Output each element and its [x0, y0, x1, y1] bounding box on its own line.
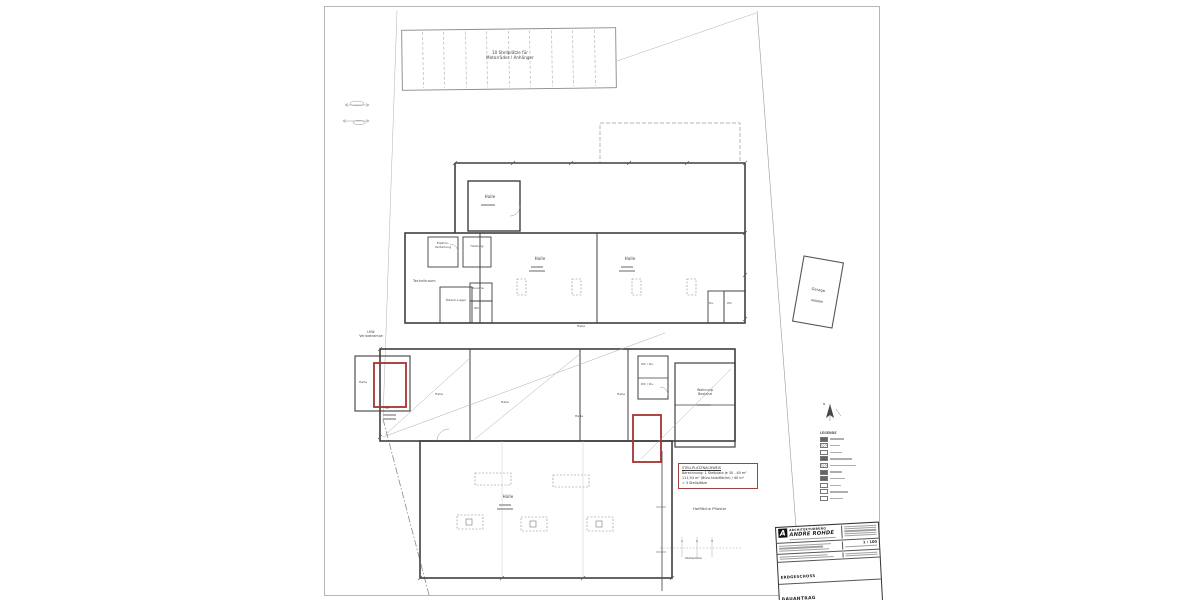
legend-swatch	[820, 456, 828, 461]
firm-contact-block	[841, 524, 877, 539]
illegible-text	[830, 478, 845, 479]
legend-swatch	[820, 489, 828, 494]
stall-number-3: 3	[711, 540, 713, 544]
illegible-text	[830, 438, 844, 439]
document-type: BAUANTRAG	[782, 596, 816, 600]
plan-linework	[325, 7, 879, 595]
room-label-wcdu-1: WC / Du.	[641, 363, 654, 366]
drawing-sheet: 10 Stellplätze für Motorräder / Anhänger…	[324, 6, 880, 596]
illegible-text	[830, 485, 841, 486]
label-stellplaetze: Stellplätze	[685, 557, 702, 561]
legend-swatch	[820, 450, 828, 455]
title-block: A ARCHITEKTURBÜRO ANDRE ROHDE 1 : 10	[775, 522, 883, 600]
illegible-text	[830, 491, 848, 492]
illegible-text	[830, 465, 856, 466]
room-label-wcdu-2: WC / Du.	[641, 383, 654, 386]
legend-title: LEGENDE	[820, 431, 878, 435]
room-label-halle-bottom: Halle	[493, 495, 523, 500]
legend-swatch	[820, 483, 828, 488]
illegible-text	[830, 458, 852, 459]
room-label-oeltank: Öltank-Lager	[439, 299, 473, 303]
legend-item	[820, 483, 878, 488]
illegible-area-text	[621, 266, 633, 268]
legend-item	[820, 463, 878, 468]
legend-item	[820, 496, 878, 501]
illegible-area-text	[531, 266, 543, 268]
room-label-wc2: WC	[727, 302, 732, 305]
room-label-halle-corridor: Halle	[577, 325, 585, 329]
illegible-area-text	[499, 504, 511, 506]
illegible-text	[846, 554, 878, 557]
floor-name: ERDGESCHOSS	[781, 573, 816, 580]
legend-swatch	[820, 443, 828, 448]
room-label-halle-a: Halle	[525, 257, 555, 262]
room-label-halle-m1: Halle	[435, 393, 443, 397]
legend-swatch	[820, 463, 828, 468]
legend-swatch	[820, 476, 828, 481]
illegible-area-text	[497, 508, 513, 510]
room-label-technikraum: Technikraum	[413, 279, 436, 283]
label-tor: Tor	[385, 407, 389, 410]
room-label-halle-b: Halle	[615, 257, 645, 262]
firm-logo-icon: A	[778, 528, 787, 537]
room-label-halle-m3: Halle	[575, 415, 583, 419]
illegible-text	[830, 445, 840, 446]
room-label-halle-left: Halle	[359, 381, 367, 385]
room-label-heizung: Heizung	[464, 245, 490, 249]
stall-number-2: 2	[696, 540, 698, 544]
stall-number-1: 1	[681, 540, 683, 544]
illegible-text	[845, 533, 877, 536]
room-label-halle-m4: Halle	[617, 393, 625, 397]
legend-item	[820, 437, 878, 442]
illegible-text	[830, 452, 842, 453]
room-label-wc: WC	[474, 307, 479, 311]
label-hofflaeche: Hoffläche Pflaster	[693, 507, 727, 511]
north-label: N	[823, 403, 825, 407]
illegible-text	[383, 418, 396, 420]
legend-item	[820, 489, 878, 494]
legend-swatch	[820, 496, 828, 501]
room-label-wohnung: Wohnung Bestand	[685, 389, 725, 397]
room-label-du: Du.	[709, 302, 714, 305]
legend-swatch	[820, 470, 828, 475]
label-lkw-rampe: LKW Verladerampe	[351, 331, 391, 339]
legend-item	[820, 470, 878, 475]
legend-item	[820, 476, 878, 481]
room-label-halle-top: Halle	[475, 195, 505, 200]
illegible-area-text	[529, 270, 545, 272]
floor-plan-canvas: 10 Stellplätze für Motorräder / Anhänger…	[0, 0, 1200, 600]
legend-swatch	[820, 437, 828, 442]
room-label-dusche: Dusche	[472, 287, 484, 291]
stellplatz-note-box: STELLPLATZNACHWEIS Berechnung: 1 Stellpl…	[678, 463, 758, 489]
parking-area-label: 10 Stellplätze für Motorräder / Anhänger	[445, 51, 575, 60]
illegible-text	[383, 414, 396, 416]
legend-item	[820, 456, 878, 461]
room-label-elektro: Elektro- Verteilung	[429, 242, 457, 249]
illegible-text	[845, 545, 877, 548]
illegible-text	[830, 471, 842, 472]
illegible-area-text	[619, 270, 635, 272]
illegible-area-text	[697, 404, 711, 406]
illegible-text	[830, 498, 843, 499]
illegible-area-text	[481, 204, 495, 206]
legend: LEGENDE	[820, 431, 878, 503]
room-label-halle-m2: Halle	[501, 401, 509, 405]
note-line3: = 3 Stellplätze	[682, 481, 754, 486]
legend-item	[820, 450, 878, 455]
legend-item	[820, 443, 878, 448]
